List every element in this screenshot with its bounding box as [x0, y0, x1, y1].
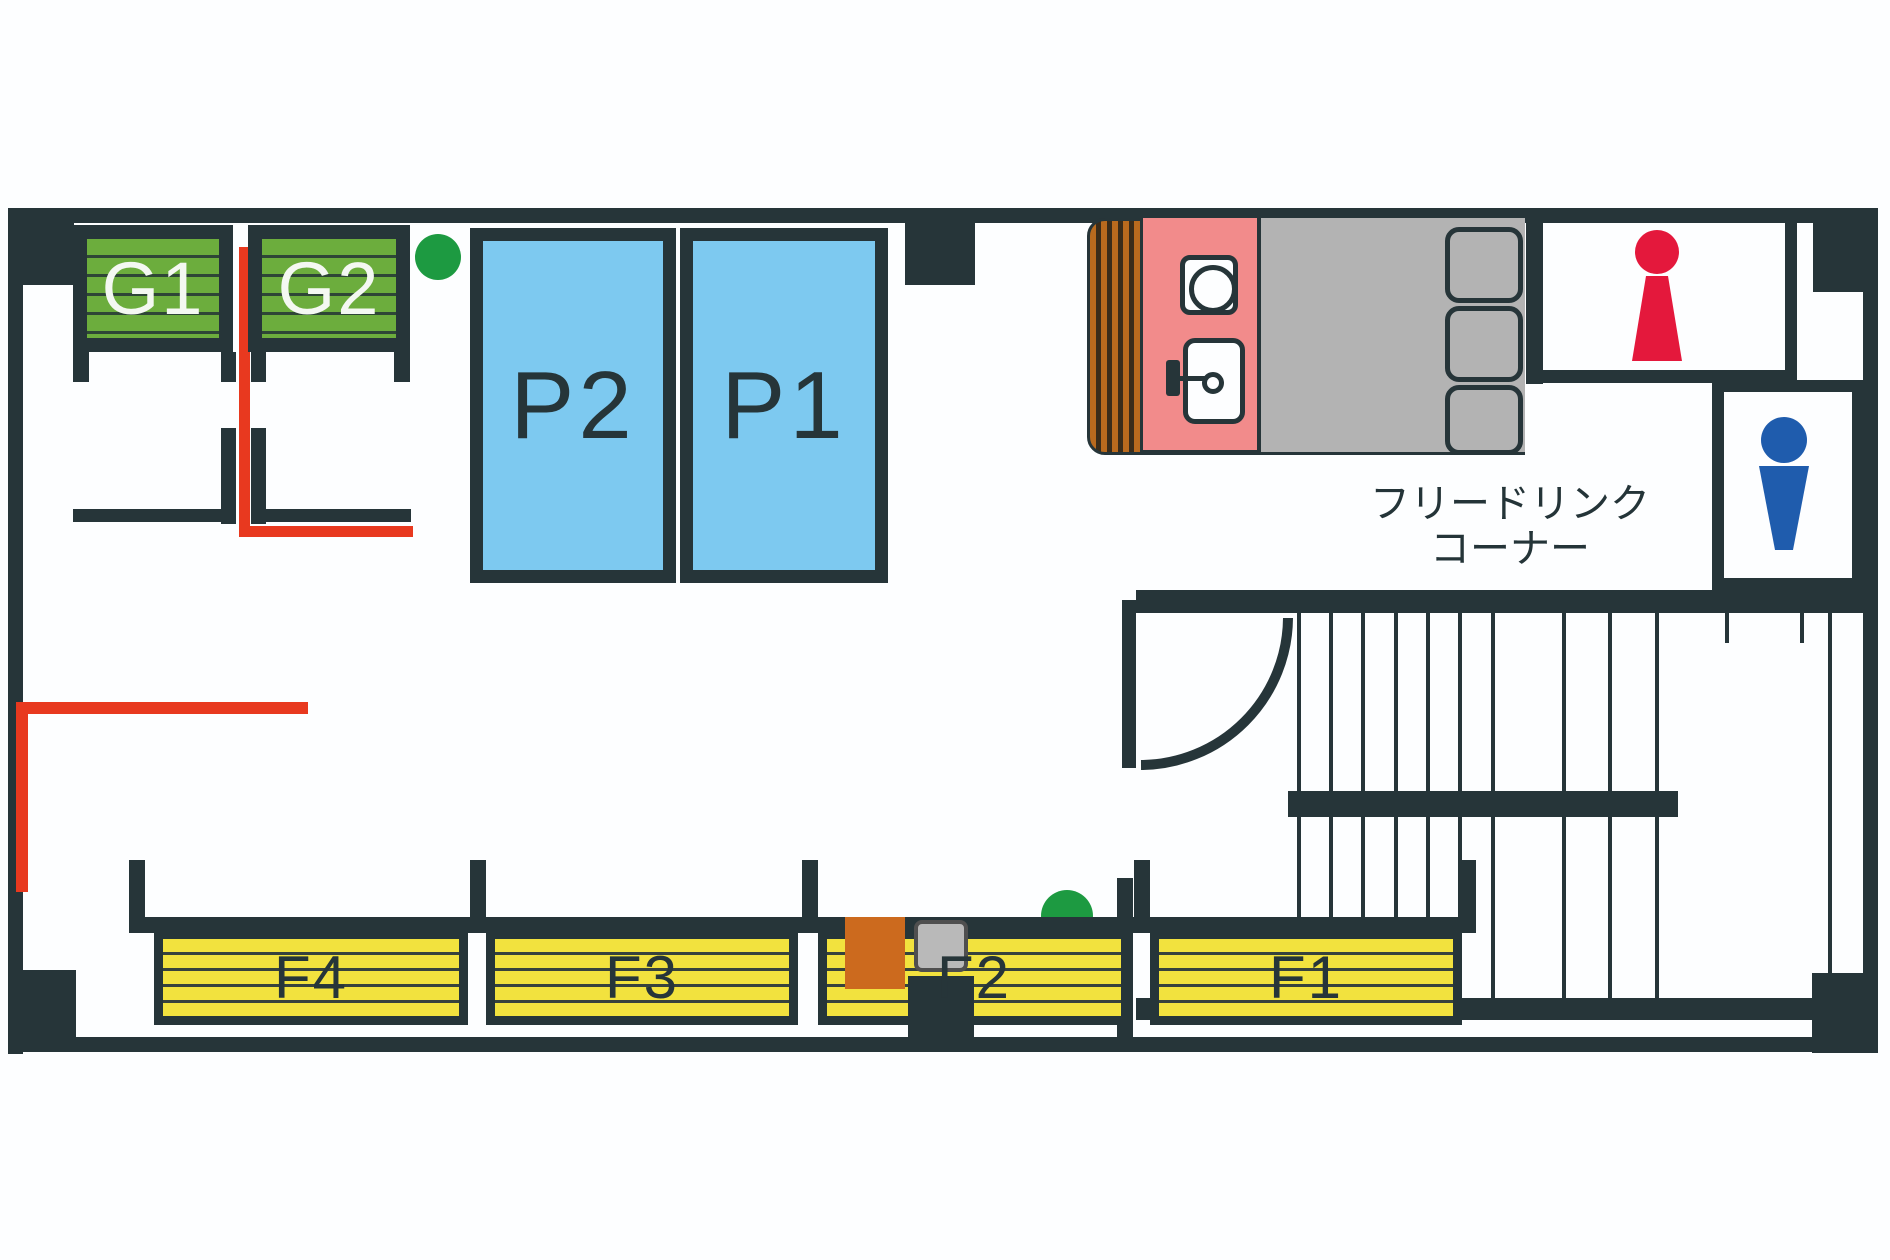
wall-block-top-middle [905, 208, 975, 285]
booth-f4-label: F4 [274, 943, 348, 1012]
f-partition-stub [470, 860, 486, 917]
orange-bin [845, 917, 905, 989]
booth-g2: G2 [248, 225, 410, 352]
hob-icon [1180, 255, 1238, 315]
drink-corner-label: フリードリンク コーナー [1360, 482, 1660, 572]
wall-block-top-left [8, 208, 74, 285]
stair-landing-bar [1288, 791, 1678, 817]
chair [1445, 385, 1523, 455]
chair [1445, 227, 1523, 303]
drink-corner-label-line2: コーナー [1360, 527, 1660, 572]
wall-block-top-right [1813, 208, 1878, 292]
booth-p1-label: P1 [721, 351, 846, 461]
stair-tread-stub [1725, 613, 1729, 643]
stair-door-arc [1136, 613, 1296, 773]
g2-partition-left-lower [251, 428, 266, 524]
g-partition-stub-right [394, 352, 410, 382]
stair-door-leaf [1122, 600, 1136, 768]
booth-p2-label: P2 [510, 351, 635, 461]
female-room-wall-right [1785, 208, 1797, 384]
male-icon [1740, 412, 1830, 552]
f-partition-stub [1460, 860, 1476, 917]
stair-corner-block [1812, 973, 1878, 1053]
booth-p2: P2 [470, 228, 676, 583]
booth-g1-label: G1 [102, 246, 205, 331]
route-line-horizontal-left [16, 702, 308, 714]
route-line-horizontal-g [239, 526, 413, 537]
wall-left [8, 208, 23, 1054]
f-partition-stub [129, 860, 145, 917]
floor-plan: G1 G2 P2 P1 フリードリンク コーナー [0, 0, 1890, 1260]
booth-g2-label: G2 [278, 246, 381, 331]
drink-corner-label-line1: フリードリンク [1360, 482, 1660, 527]
booth-f1-label: F1 [1269, 943, 1343, 1012]
wall-block-bottom-left [8, 970, 76, 1052]
booth-p1: P1 [680, 228, 888, 583]
drink-corner-curtain [1087, 218, 1143, 455]
booth-g1: G1 [73, 225, 233, 352]
stair-tread-stub [1800, 613, 1804, 643]
stair-rail-line [1828, 613, 1832, 973]
g-partition-stub-left [73, 352, 89, 382]
wall-bottom [8, 1037, 1878, 1052]
female-icon [1610, 228, 1705, 363]
booth-f1: F1 [1150, 930, 1462, 1025]
booth-f4: F4 [154, 930, 468, 1025]
booth-f2-label: F2 [937, 943, 1011, 1012]
g-partition-horizontal-right [266, 509, 411, 522]
booth-f3: F3 [486, 930, 798, 1025]
g1-partition-right-upper [221, 352, 236, 382]
chair [1445, 306, 1523, 382]
g2-partition-left-upper [251, 352, 266, 382]
plant-icon [415, 234, 461, 280]
f-partition-stub [1134, 860, 1150, 917]
f-partition-stub [802, 860, 818, 917]
g-partition-horizontal-left [73, 509, 236, 522]
wall-right [1863, 208, 1878, 1052]
faucet-knob [1202, 372, 1224, 394]
route-line-vertical-left [16, 702, 28, 892]
stair-wall-top [1136, 590, 1878, 613]
female-room-wall-left [1526, 208, 1543, 384]
booth-f3-label: F3 [605, 943, 679, 1012]
